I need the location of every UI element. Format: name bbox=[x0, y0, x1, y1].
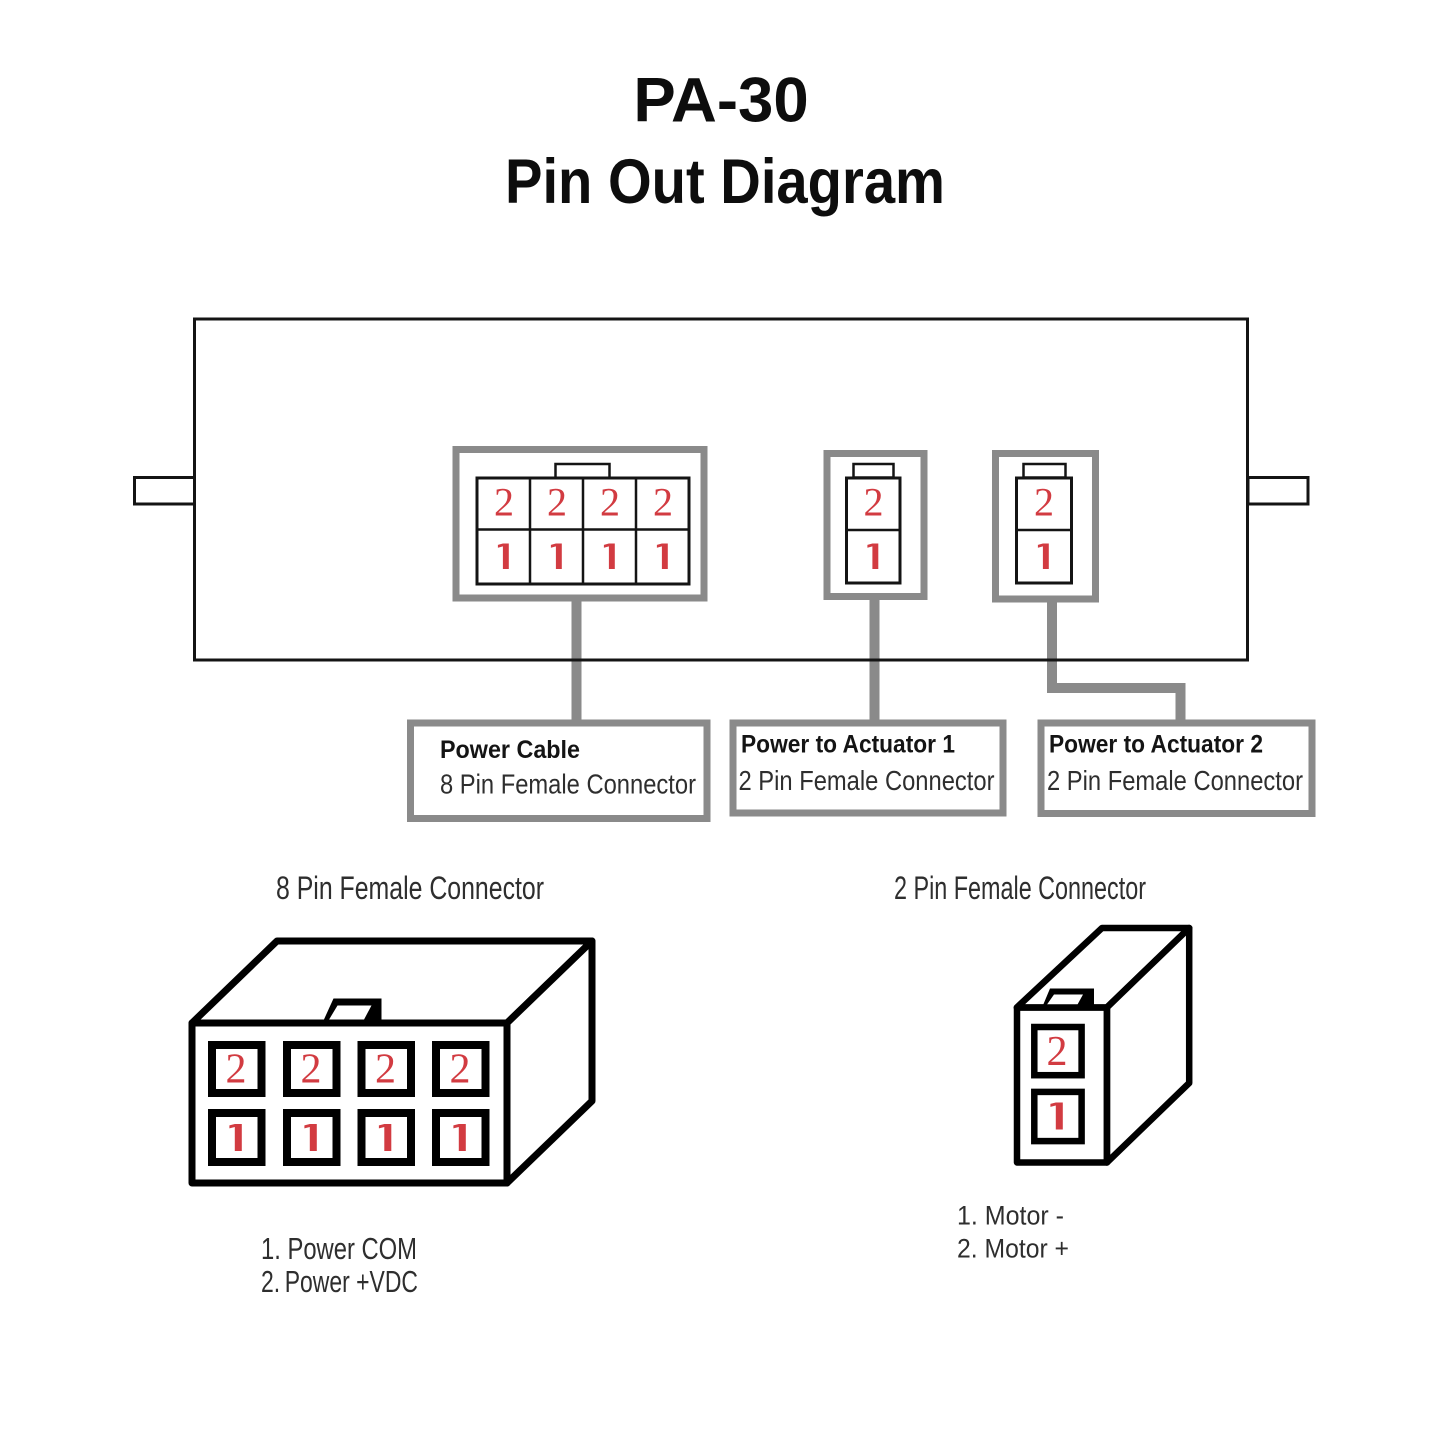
svg-text:Pin Out Diagram: Pin Out Diagram bbox=[505, 147, 945, 217]
svg-text:2. Power +VDC: 2. Power +VDC bbox=[261, 1264, 418, 1299]
svg-text:2: 2 bbox=[653, 480, 673, 525]
svg-text:2: 2 bbox=[1034, 480, 1054, 525]
svg-text:Power Cable: Power Cable bbox=[440, 736, 580, 764]
svg-text:2 Pin Female Connector: 2 Pin Female Connector bbox=[739, 765, 995, 796]
svg-text:2: 2 bbox=[494, 480, 514, 525]
svg-text:2: 2 bbox=[600, 480, 620, 525]
svg-text:2: 2 bbox=[1047, 1029, 1068, 1075]
svg-text:1. Power COM: 1. Power COM bbox=[261, 1231, 417, 1266]
svg-text:8 Pin Female Connector: 8 Pin Female Connector bbox=[440, 769, 696, 800]
svg-text:2: 2 bbox=[301, 1047, 322, 1093]
svg-text:Power to Actuator 1: Power to Actuator 1 bbox=[741, 731, 955, 759]
svg-text:2: 2 bbox=[450, 1047, 471, 1093]
svg-text:1. Motor -: 1. Motor - bbox=[957, 1201, 1064, 1231]
svg-text:Power to Actuator 2: Power to Actuator 2 bbox=[1049, 731, 1263, 759]
svg-text:2: 2 bbox=[226, 1047, 247, 1093]
svg-text:2: 2 bbox=[547, 480, 567, 525]
svg-text:2: 2 bbox=[864, 480, 884, 525]
svg-text:2. Motor +: 2. Motor + bbox=[957, 1234, 1069, 1264]
svg-text:8 Pin Female Connector: 8 Pin Female Connector bbox=[276, 870, 544, 906]
svg-text:2: 2 bbox=[375, 1047, 396, 1093]
svg-text:2 Pin Female Connector: 2 Pin Female Connector bbox=[894, 870, 1146, 906]
svg-text:PA-30: PA-30 bbox=[633, 66, 808, 136]
svg-text:2 Pin Female Connector: 2 Pin Female Connector bbox=[1047, 765, 1303, 796]
